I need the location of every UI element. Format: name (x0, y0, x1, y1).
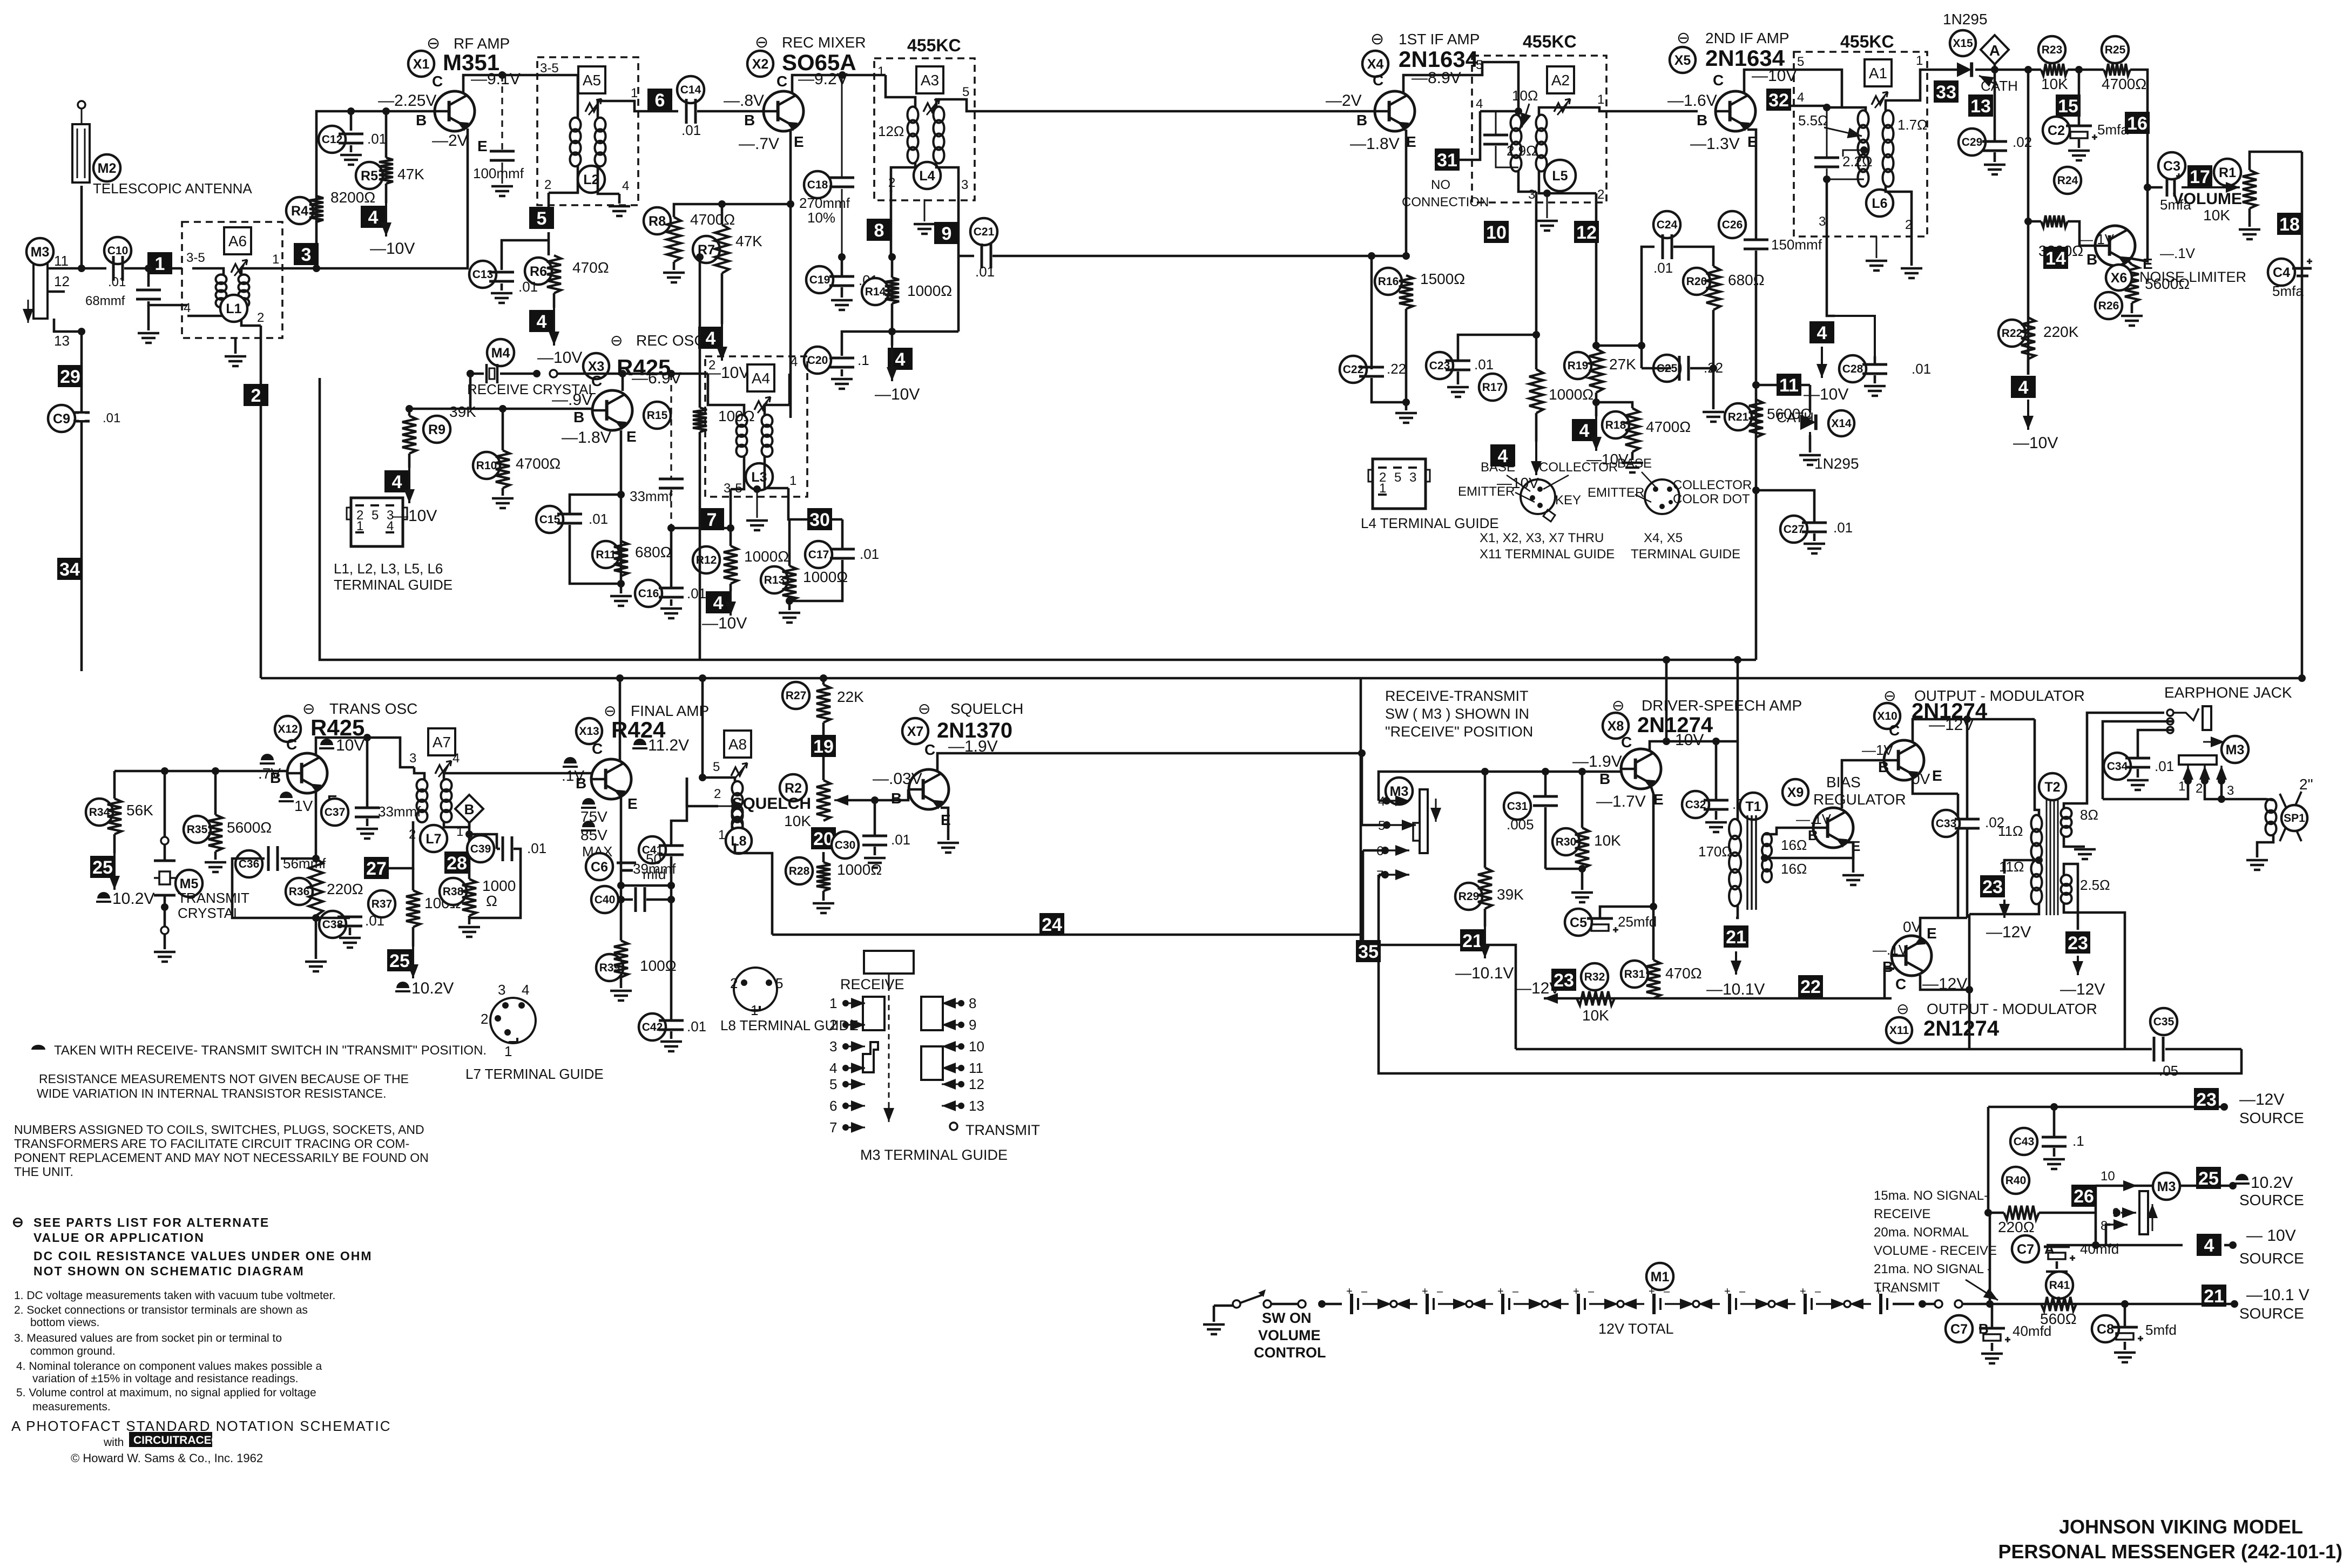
svg-text:10.2V: 10.2V (112, 890, 154, 908)
svg-text:22K: 22K (837, 688, 864, 705)
svg-text:—10V: —10V (2013, 434, 2058, 452)
svg-text:C43: C43 (2014, 1136, 2035, 1148)
svg-text:+: + (1346, 1286, 1353, 1297)
svg-text:1: 1 (751, 1002, 758, 1018)
svg-text:3: 3 (1819, 214, 1826, 229)
svg-text:NO: NO (1431, 178, 1450, 192)
svg-text:10%: 10% (807, 209, 835, 226)
svg-text:—.1V: —.1V (2160, 245, 2196, 261)
svg-text:11.2V: 11.2V (648, 736, 689, 754)
svg-text:455KC: 455KC (1523, 32, 1577, 51)
svg-text:M1: M1 (1651, 1269, 1670, 1285)
svg-text:⊖: ⊖ (1370, 30, 1384, 48)
svg-text:R19: R19 (1568, 360, 1589, 372)
svg-text:1: 1 (2178, 779, 2185, 794)
svg-text:TERMINAL GUIDE: TERMINAL GUIDE (334, 577, 453, 593)
svg-text:34: 34 (59, 559, 80, 580)
svg-text:–: – (1739, 1286, 1746, 1297)
svg-text:1V: 1V (294, 797, 313, 814)
svg-text:10.2V: 10.2V (411, 979, 454, 997)
svg-text:L1: L1 (226, 301, 241, 316)
svg-text:X11 TERMINAL GUIDE: X11 TERMINAL GUIDE (1480, 547, 1615, 562)
svg-text:X6: X6 (2111, 271, 2128, 286)
svg-text:—1.3V: —1.3V (1690, 135, 1740, 153)
svg-text:—.1V: —.1V (1873, 942, 1908, 958)
svg-text:TRANSMIT: TRANSMIT (1874, 1280, 1940, 1295)
svg-text:R40: R40 (2005, 1174, 2027, 1187)
svg-text:13: 13 (1970, 96, 1991, 117)
svg-text:100mmf: 100mmf (473, 165, 524, 181)
svg-text:⊖: ⊖ (1896, 1001, 1909, 1017)
svg-text:4700Ω: 4700Ω (516, 455, 561, 472)
svg-text:C31: C31 (1507, 800, 1528, 813)
svg-text:2: 2 (730, 975, 738, 991)
svg-text:C7: C7 (1950, 1322, 1968, 1337)
svg-text:—10.1 V: —10.1 V (2246, 1286, 2310, 1304)
svg-text:4: 4 (1817, 323, 1827, 343)
svg-text:4: 4 (791, 355, 798, 369)
svg-text:B: B (744, 112, 755, 129)
svg-text:SOURCE: SOURCE (2239, 1305, 2304, 1322)
svg-text:L1, L2, L3, L5, L6: L1, L2, L3, L5, L6 (334, 560, 443, 577)
svg-text:4700Ω: 4700Ω (690, 211, 735, 228)
svg-text:R8: R8 (649, 214, 666, 229)
svg-text:—1.7V: —1.7V (1596, 793, 1646, 810)
svg-text:170Ω: 170Ω (1698, 843, 1732, 860)
svg-text:SOURCE: SOURCE (2239, 1250, 2304, 1267)
svg-text:BASE: BASE (1481, 460, 1515, 475)
svg-text:4: 4 (1797, 90, 1804, 105)
svg-text:1ST IF AMP: 1ST IF AMP (1399, 31, 1480, 48)
svg-text:C: C (286, 736, 297, 753)
svg-text:TRANSMIT: TRANSMIT (965, 1122, 1040, 1138)
svg-text:3-5: 3-5 (186, 251, 205, 265)
svg-text:8: 8 (969, 995, 976, 1011)
svg-text:⊖: ⊖ (610, 332, 623, 349)
svg-text:C36: C36 (239, 858, 260, 870)
svg-text:4: 4 (829, 1060, 837, 1076)
svg-text:C21: C21 (974, 226, 995, 238)
svg-text:455KC: 455KC (907, 36, 961, 55)
svg-text:E: E (477, 138, 488, 154)
svg-text:C42: C42 (642, 1021, 663, 1033)
svg-text:1.7Ω: 1.7Ω (1897, 117, 1928, 133)
svg-text:2: 2 (714, 787, 721, 801)
svg-text:11Ω: 11Ω (1998, 823, 2023, 839)
svg-text:4: 4 (2204, 1235, 2214, 1256)
svg-text:4: 4 (706, 328, 716, 349)
svg-text:.01: .01 (1833, 519, 1853, 536)
svg-text:L4: L4 (919, 168, 935, 184)
svg-text:.05: .05 (2159, 1063, 2178, 1079)
svg-text:—2V: —2V (432, 132, 468, 150)
svg-text:DRIVER-SPEECH AMP: DRIVER-SPEECH AMP (1642, 697, 1802, 714)
svg-text:19: 19 (813, 736, 834, 757)
svg-text:R27: R27 (786, 690, 807, 702)
svg-text:1000Ω: 1000Ω (1549, 386, 1593, 403)
svg-text:⊖: ⊖ (918, 700, 930, 717)
svg-text:C33: C33 (1936, 817, 1957, 830)
svg-text:M3: M3 (2157, 1179, 2176, 1194)
svg-text:—10V: —10V (370, 240, 415, 258)
svg-text:X2: X2 (752, 57, 769, 72)
svg-text:5: 5 (537, 208, 547, 229)
svg-text:25: 25 (389, 951, 410, 971)
svg-text:8: 8 (874, 220, 884, 241)
svg-text:COLLECTOR: COLLECTOR (1539, 460, 1618, 475)
svg-text:455KC: 455KC (1840, 32, 1894, 51)
svg-text:R30: R30 (1556, 836, 1577, 848)
svg-text:—9.1V: —9.1V (471, 70, 521, 88)
svg-text:L6: L6 (1872, 196, 1887, 211)
svg-text:⊖: ⊖ (1883, 687, 1896, 704)
svg-text:VALUE OR APPLICATION: VALUE OR APPLICATION (33, 1231, 205, 1245)
svg-text:REGULATOR: REGULATOR (1813, 791, 1906, 808)
svg-text:EMITTER: EMITTER (1458, 484, 1515, 499)
svg-text:220Ω: 220Ω (1998, 1219, 2035, 1235)
svg-text:PERSONAL MESSENGER (242-101-: PERSONAL MESSENGER (242-101-1) (1998, 1540, 2342, 1563)
svg-text:C28: C28 (1842, 363, 1863, 375)
svg-text:10Ω: 10Ω (1512, 87, 1538, 104)
svg-text:5: 5 (1476, 58, 1483, 72)
svg-text:C35: C35 (2153, 1016, 2175, 1028)
svg-text:3: 3 (498, 982, 505, 998)
svg-text:E: E (1406, 133, 1416, 150)
svg-text:—10.1V: —10.1V (1706, 981, 1765, 998)
svg-text:4700Ω: 4700Ω (1646, 418, 1691, 435)
svg-text:measurements.: measurements. (32, 1401, 111, 1413)
svg-text:mfd: mfd (643, 866, 666, 882)
svg-text:25: 25 (92, 857, 113, 878)
svg-text:25: 25 (2198, 1168, 2219, 1189)
svg-text:2: 2 (888, 175, 895, 190)
svg-text:.1: .1 (2072, 1133, 2084, 1149)
svg-text:R9: R9 (428, 422, 445, 437)
svg-text:6: 6 (655, 90, 665, 111)
svg-text:SOURCE: SOURCE (2239, 1192, 2304, 1208)
svg-text:.22: .22 (1387, 361, 1406, 377)
svg-text:R41: R41 (2049, 1279, 2070, 1292)
svg-text:—1.8V: —1.8V (1350, 135, 1400, 153)
svg-text:39K: 39K (1497, 886, 1524, 903)
svg-text:RESISTANCE MEASUREMENTS NOT GI: RESISTANCE MEASUREMENTS NOT GIVEN BECAUS… (39, 1072, 409, 1086)
svg-text:TRANSFORMERS ARE TO FACILITATE: TRANSFORMERS ARE TO FACILITATE CIRCUIT T… (14, 1137, 409, 1151)
svg-text:EMITTER: EMITTER (1588, 485, 1644, 500)
svg-text:10K: 10K (1594, 832, 1621, 849)
svg-text:.01: .01 (527, 840, 546, 856)
svg-text:.01: .01 (518, 279, 538, 295)
svg-text:3: 3 (1528, 187, 1535, 202)
svg-text:8200Ω: 8200Ω (330, 189, 375, 206)
svg-text:11: 11 (1779, 375, 1799, 396)
svg-text:B: B (1356, 112, 1367, 129)
svg-text:Ω: Ω (486, 893, 497, 909)
svg-text:33mmf: 33mmf (378, 803, 421, 820)
svg-text:C3: C3 (2163, 159, 2180, 174)
svg-text:7: 7 (829, 1119, 837, 1136)
svg-text:1: 1 (789, 474, 796, 488)
svg-text:11Ω: 11Ω (1999, 859, 2024, 875)
svg-text:.01: .01 (103, 411, 120, 425)
svg-text:7: 7 (707, 510, 717, 530)
svg-text:X12: X12 (278, 723, 298, 735)
svg-text:C19: C19 (809, 274, 830, 286)
svg-text:680Ω: 680Ω (635, 544, 672, 560)
svg-text:.01: .01 (2155, 758, 2174, 774)
svg-text:2: 2 (251, 386, 261, 406)
svg-text:L4 TERMINAL GUIDE: L4 TERMINAL GUIDE (1361, 515, 1499, 531)
svg-text:R21: R21 (1728, 411, 1749, 423)
svg-text:1: 1 (272, 252, 279, 267)
svg-text:R5: R5 (361, 168, 378, 184)
svg-text:+: + (1800, 1286, 1806, 1297)
svg-text:RECEIVE-TRANSMIT: RECEIVE-TRANSMIT (1385, 688, 1529, 704)
svg-text:1000Ω: 1000Ω (907, 282, 952, 299)
svg-text:C8: C8 (2097, 1322, 2114, 1337)
svg-text:10.2V: 10.2V (2251, 1174, 2293, 1192)
svg-text:—1.9V: —1.9V (1572, 753, 1622, 771)
svg-text:2: 2 (2196, 781, 2203, 796)
svg-text:M4: M4 (491, 346, 510, 361)
svg-text:R6: R6 (530, 264, 547, 279)
svg-text:22: 22 (1800, 977, 1821, 997)
svg-text:1: 1 (877, 64, 884, 79)
svg-text:1000: 1000 (482, 877, 516, 894)
svg-text:C15: C15 (539, 513, 561, 526)
svg-text:M3: M3 (2226, 742, 2245, 758)
svg-text:R35: R35 (187, 823, 208, 836)
svg-text:⊖: ⊖ (427, 35, 440, 52)
svg-text:C: C (591, 373, 602, 389)
svg-text:40mfd: 40mfd (2013, 1323, 2051, 1339)
svg-text:R37: R37 (372, 898, 393, 910)
svg-text:1. DC voltage measurements tak: 1. DC voltage measurements taken with va… (14, 1289, 335, 1302)
svg-text:31: 31 (1437, 150, 1457, 171)
svg-text:—.1V: —.1V (2079, 231, 2115, 247)
svg-text:220K: 220K (2043, 323, 2079, 340)
svg-text:12: 12 (969, 1076, 984, 1092)
svg-text:C18: C18 (807, 179, 828, 191)
svg-text:R32: R32 (1584, 971, 1605, 983)
svg-text:— 10V: — 10V (2246, 1227, 2296, 1245)
svg-text:A4: A4 (752, 370, 770, 387)
svg-text:.01: .01 (860, 546, 879, 562)
svg-text:4: 4 (2018, 377, 2029, 398)
svg-text:.01: .01 (891, 832, 910, 848)
svg-text:27K: 27K (1609, 356, 1636, 373)
svg-text:2.5Ω: 2.5Ω (2080, 877, 2110, 893)
svg-text:X3: X3 (588, 359, 605, 374)
svg-text:R22: R22 (2002, 327, 2023, 340)
svg-text:4. Nominal tolerance on compo: 4. Nominal tolerance on component values… (16, 1360, 322, 1373)
svg-text:27: 27 (366, 859, 387, 879)
svg-text:A2: A2 (1551, 72, 1570, 89)
svg-text:4: 4 (522, 982, 529, 998)
svg-text:4: 4 (387, 519, 394, 533)
svg-text:5. Volume control at maximum,: 5. Volume control at maximum, no signal … (16, 1387, 316, 1399)
svg-text:C: C (776, 73, 787, 90)
svg-text:L7: L7 (426, 832, 441, 847)
svg-text:23: 23 (1982, 877, 2003, 897)
svg-text:12: 12 (1576, 222, 1597, 243)
svg-text:A PHOTOFACT STANDARD NOTATI: A PHOTOFACT STANDARD NOTATION SCHEMATIC (11, 1418, 391, 1434)
svg-text:L8 TERMINAL GUIDE: L8 TERMINAL GUIDE (720, 1017, 859, 1033)
svg-text:E: E (1653, 791, 1664, 808)
svg-text:NOISE LIMITER: NOISE LIMITER (2139, 269, 2246, 285)
svg-text:R25: R25 (2105, 44, 2126, 56)
svg-text:26: 26 (2074, 1186, 2094, 1207)
svg-text:X9: X9 (1787, 785, 1804, 800)
svg-text:X11: X11 (1889, 1024, 1909, 1037)
svg-text:B: B (2086, 251, 2097, 268)
svg-text:C: C (1713, 72, 1724, 89)
svg-text:4: 4 (184, 301, 191, 315)
svg-text:X1, X2, X3, X7 THRU: X1, X2, X3, X7 THRU (1480, 531, 1604, 545)
svg-text:variation of ±15% in voltage a: variation of ±15% in voltage and resista… (32, 1373, 299, 1385)
svg-text:—8.9V: —8.9V (1412, 69, 1461, 87)
svg-text:R28: R28 (789, 865, 810, 877)
svg-text:23: 23 (2068, 933, 2088, 954)
svg-text:50: 50 (646, 851, 661, 867)
svg-text:5600Ω: 5600Ω (227, 819, 272, 836)
svg-text:470Ω: 470Ω (1665, 965, 1702, 982)
svg-text:—.7V: —.7V (739, 135, 779, 153)
svg-text:3-5: 3-5 (540, 61, 559, 76)
svg-text:R4: R4 (291, 204, 308, 219)
svg-text:15ma. NO SIGNAL-: 15ma. NO SIGNAL- (1874, 1188, 1988, 1203)
svg-text:.01: .01 (1474, 356, 1494, 373)
svg-text:A7: A7 (433, 734, 451, 751)
svg-text:VOLUME - RECEIVE: VOLUME - RECEIVE (1874, 1243, 1997, 1258)
svg-text:—.03V: —.03V (873, 770, 922, 788)
svg-text:L5: L5 (1552, 168, 1568, 184)
svg-text:5: 5 (775, 975, 783, 991)
svg-text:.01: .01 (589, 511, 608, 527)
svg-text:R15: R15 (647, 409, 668, 422)
svg-text:—.9V: —.9V (552, 391, 592, 409)
svg-text:—12V: —12V (2239, 1091, 2284, 1109)
svg-text:14: 14 (2045, 248, 2066, 269)
svg-text:—12V: —12V (1986, 923, 2031, 941)
svg-text:—.1V: —.1V (1796, 811, 1832, 827)
svg-text:2: 2 (1597, 187, 1604, 202)
svg-text:33: 33 (1936, 82, 1956, 103)
svg-text:35: 35 (1358, 942, 1379, 962)
svg-text:R23: R23 (2042, 44, 2063, 56)
svg-text:SQUELCH: SQUELCH (732, 795, 811, 813)
svg-text:10K: 10K (2041, 76, 2068, 92)
svg-text:B: B (573, 409, 584, 425)
svg-text:4: 4 (895, 349, 906, 370)
svg-text:28: 28 (447, 853, 467, 874)
svg-text:M3: M3 (31, 245, 50, 260)
svg-text:2.9Ω: 2.9Ω (1507, 143, 1537, 159)
svg-text:R14: R14 (865, 286, 886, 298)
svg-text:–: – (1588, 1286, 1595, 1297)
svg-text:2N1274: 2N1274 (1923, 1017, 2000, 1040)
svg-text:+: + (1573, 1286, 1579, 1297)
svg-text:WIDE VARIATION IN INTERNAL TRA: WIDE VARIATION IN INTERNAL TRANSISTOR RE… (37, 1086, 387, 1100)
svg-text:470Ω: 470Ω (572, 259, 609, 276)
svg-text:1000Ω: 1000Ω (803, 569, 848, 585)
svg-text:C40: C40 (595, 894, 616, 906)
svg-text:B: B (464, 801, 475, 817)
svg-text:1: 1 (631, 86, 638, 100)
svg-text:5: 5 (829, 1076, 837, 1092)
svg-text:REC MIXER: REC MIXER (782, 34, 866, 51)
svg-text:12: 12 (54, 273, 70, 289)
svg-text:C27: C27 (1784, 523, 1805, 536)
svg-text:—2V: —2V (1326, 92, 1362, 110)
svg-text:.01: .01 (367, 131, 387, 147)
svg-text:30: 30 (809, 510, 830, 530)
svg-text:13: 13 (54, 333, 70, 349)
svg-text:11: 11 (54, 253, 69, 269)
svg-text:⊖: ⊖ (12, 1214, 24, 1230)
svg-text:R2: R2 (785, 781, 802, 796)
svg-text:40mfd: 40mfd (2080, 1241, 2119, 1257)
svg-text:2: 2 (544, 178, 551, 192)
svg-text:1N295: 1N295 (1814, 455, 1859, 472)
svg-text:⊖: ⊖ (1612, 697, 1624, 714)
svg-text:REC OSC: REC OSC (636, 332, 705, 349)
svg-text:56K: 56K (126, 802, 153, 819)
svg-text:10K: 10K (1582, 1007, 1609, 1024)
svg-text:SW ( M3 ) SHOWN IN: SW ( M3 ) SHOWN IN (1385, 706, 1529, 722)
svg-text:23: 23 (1554, 970, 1574, 991)
svg-text:C: C (1621, 734, 1632, 751)
svg-text:680Ω: 680Ω (1728, 272, 1765, 288)
svg-text:M3 TERMINAL GUIDE: M3 TERMINAL GUIDE (860, 1147, 1008, 1163)
svg-text:24: 24 (1042, 915, 1062, 935)
svg-text:NUMBERS ASSIGNED TO COILS, SWI: NUMBERS ASSIGNED TO COILS, SWITCHES, PLU… (14, 1123, 424, 1137)
svg-text:R29: R29 (1458, 890, 1480, 903)
svg-text:17: 17 (2190, 167, 2210, 187)
svg-text:E: E (1932, 767, 1942, 784)
svg-text:B: B (416, 112, 427, 129)
svg-text:VOLUME: VOLUME (1258, 1327, 1321, 1343)
svg-text:3-5: 3-5 (724, 481, 742, 496)
svg-text:21: 21 (1462, 931, 1483, 951)
svg-text:4700Ω: 4700Ω (2102, 76, 2146, 92)
svg-text:A5: A5 (583, 72, 601, 89)
svg-text:R11: R11 (596, 549, 616, 561)
svg-text:C30: C30 (835, 839, 856, 851)
svg-text:R38: R38 (443, 886, 464, 898)
svg-text:—10V: —10V (537, 349, 582, 367)
svg-text:0V: 0V (1912, 771, 1930, 787)
svg-text:C14: C14 (680, 84, 701, 96)
svg-text:JOHNSON VIKING MODEL: JOHNSON VIKING MODEL (2059, 1516, 2303, 1538)
svg-text:—2.25V: —2.25V (378, 92, 436, 110)
svg-text:1000Ω: 1000Ω (744, 548, 789, 565)
svg-text:.1: .1 (857, 352, 869, 368)
svg-text:270mmf: 270mmf (799, 195, 850, 211)
svg-text:R24: R24 (2057, 174, 2078, 187)
svg-text:3. Measured values are from so: 3. Measured values are from socket pin o… (14, 1332, 282, 1344)
svg-text:10V: 10V (336, 736, 364, 754)
svg-text:.01: .01 (681, 122, 701, 138)
svg-text:3: 3 (1409, 470, 1416, 485)
svg-text:C5: C5 (1570, 915, 1587, 930)
svg-text:29: 29 (60, 367, 80, 387)
svg-text:C13: C13 (472, 268, 494, 281)
svg-text:CONTROL: CONTROL (1254, 1344, 1326, 1361)
svg-text:KEY: KEY (1555, 493, 1581, 508)
svg-text:common ground.: common ground. (30, 1345, 116, 1357)
svg-text:–: – (1361, 1286, 1368, 1297)
svg-text:—10V: —10V (875, 386, 920, 403)
